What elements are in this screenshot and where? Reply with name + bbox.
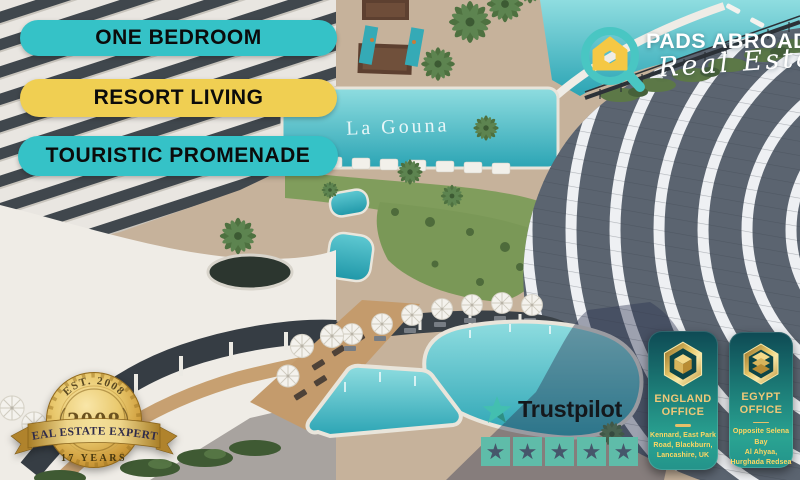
star-glyph: ★ <box>486 437 506 466</box>
experience-badge: EST. 2008 2008 REAL ESTATE EXPERTS 17 YE… <box>8 363 180 480</box>
trustpilot-wordmark: Trustpilot <box>518 396 622 423</box>
banner-label: ONE BEDROOM <box>95 26 262 50</box>
star-glyph: ★ <box>550 437 570 466</box>
office-address-line: Al Ahyaa, <box>729 448 793 458</box>
star-glyph: ★ <box>582 437 602 466</box>
trustpilot-star-tile: ★ <box>545 437 574 466</box>
gold-layers-hexagon-icon <box>741 342 781 386</box>
magnifier-house-icon <box>578 24 650 96</box>
trustpilot-star-icon <box>482 395 512 425</box>
badge-years-text: 17 YEARS <box>61 453 127 464</box>
office-address-line: Opposite Selena Bay <box>729 427 793 447</box>
trustpilot-star-tile: ★ <box>481 437 510 466</box>
office-address-line: Road, Blackburn, <box>650 441 716 451</box>
banner-label: TOURISTIC PROMENADE <box>46 144 311 168</box>
promo-flyer: La Gouna <box>0 0 800 480</box>
banner-resort-living: RESORT LIVING <box>20 79 337 117</box>
office-title-line1: ENGLAND <box>654 393 711 406</box>
office-card-england: ENGLAND OFFICE Kennard, East Park Road, … <box>648 331 718 470</box>
office-title-line1: EGYPT <box>740 391 783 404</box>
trustpilot-star-tile: ★ <box>513 437 542 466</box>
trustpilot-rating-row: ★ ★ ★ ★ ★ <box>481 437 638 466</box>
star-glyph: ★ <box>518 437 538 466</box>
trustpilot-star-tile: ★ <box>609 437 638 466</box>
star-glyph: ★ <box>614 437 634 466</box>
banner-one-bedroom: ONE BEDROOM <box>20 20 337 56</box>
pool-name-label: La Gouna <box>346 114 450 140</box>
gold-cube-hexagon-icon <box>661 340 705 388</box>
trustpilot-star-tile: ★ <box>577 437 606 466</box>
office-title-line2: OFFICE <box>740 404 783 417</box>
office-card-egypt: EGYPT OFFICE Opposite Selena Bay Al Ahya… <box>729 332 793 468</box>
office-address-line: Kennard, East Park <box>650 431 716 441</box>
banner-label: RESORT LIVING <box>94 86 264 110</box>
banner-touristic-promenade: TOURISTIC PROMENADE <box>18 136 338 176</box>
office-divider <box>753 422 769 423</box>
terrace-palm-cutout <box>208 255 292 289</box>
office-title-line2: OFFICE <box>654 406 711 419</box>
office-address-line: Hurghada Redsea <box>729 458 793 468</box>
office-address-line: Lancashire, UK <box>650 451 716 461</box>
office-divider <box>675 424 691 427</box>
